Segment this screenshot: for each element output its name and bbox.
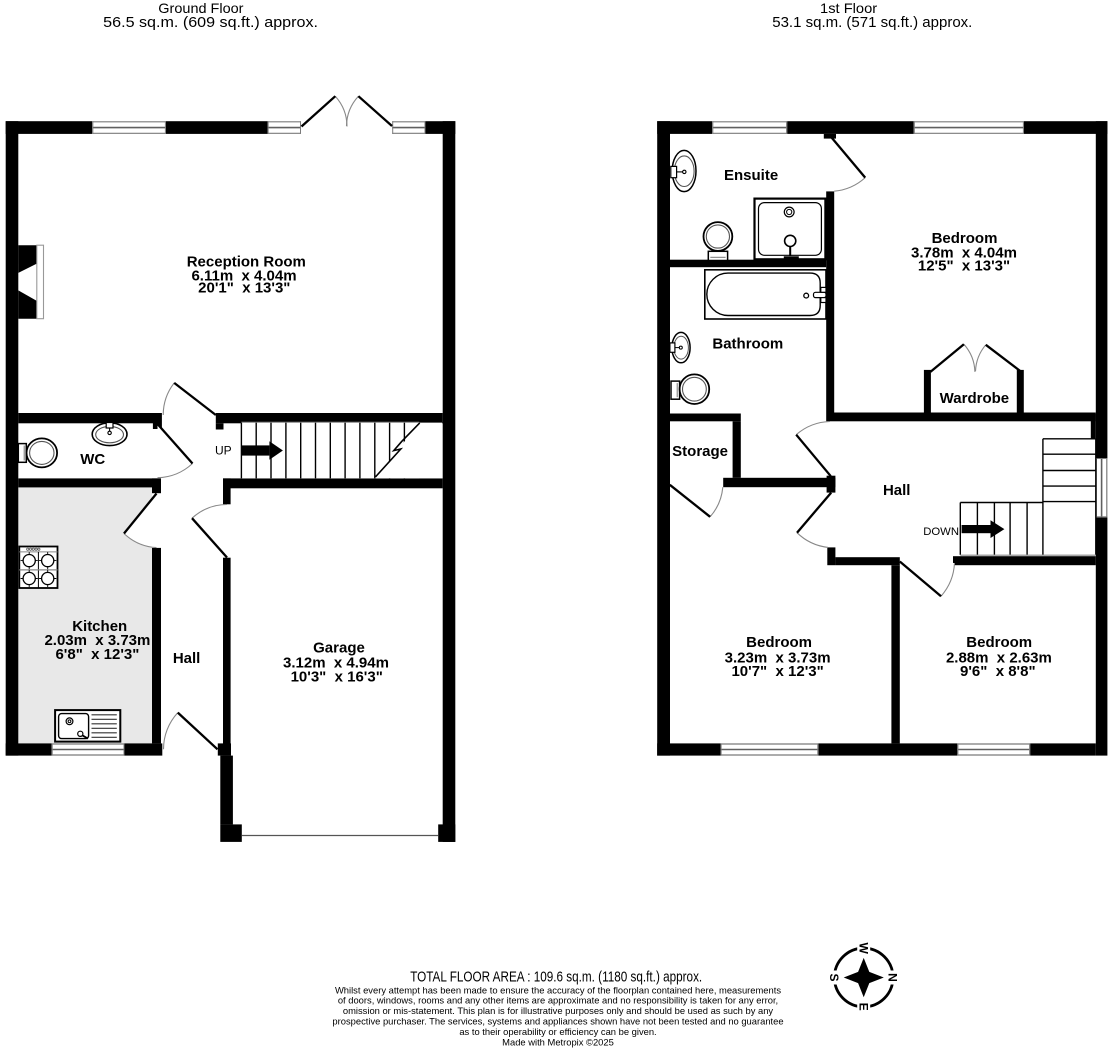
svg-text:WC: WC — [80, 451, 105, 468]
svg-text:omission or mis-statement. Thi: omission or mis-statement. This plan is … — [343, 1005, 774, 1016]
svg-text:9'6" x 8'8": 9'6" x 8'8" — [960, 663, 1036, 680]
svg-text:53.1 sq.m. (571 sq.ft.) approx: 53.1 sq.m. (571 sq.ft.) approx. — [772, 14, 972, 31]
svg-text:56.5 sq.m. (609 sq.ft.) approx: 56.5 sq.m. (609 sq.ft.) approx. — [103, 14, 318, 31]
svg-text:Hall: Hall — [173, 650, 201, 667]
svg-text:UP: UP — [215, 444, 232, 458]
svg-text:Hall: Hall — [883, 482, 911, 499]
svg-text:6'8" x 12'3": 6'8" x 12'3" — [55, 646, 139, 663]
svg-text:Wardrobe: Wardrobe — [940, 390, 1009, 407]
svg-text:Made with Metropix ©2025: Made with Metropix ©2025 — [502, 1036, 614, 1047]
svg-text:of doors, windows, rooms and a: of doors, windows, rooms and any other i… — [338, 995, 778, 1006]
svg-text:as to their operability or eff: as to their operability or efficiency ca… — [459, 1026, 656, 1037]
svg-text:E: E — [856, 1003, 870, 1011]
svg-text:TOTAL FLOOR AREA : 109.6 sq.m.: TOTAL FLOOR AREA : 109.6 sq.m. (1180 sq.… — [410, 969, 702, 986]
svg-text:S: S — [827, 973, 841, 981]
svg-text:12'5" x 13'3": 12'5" x 13'3" — [918, 258, 1010, 275]
svg-text:prospective purchaser. The ser: prospective purchaser. The services, sys… — [332, 1016, 783, 1027]
svg-text:Ensuite: Ensuite — [724, 167, 778, 184]
svg-text:10'3" x 16'3": 10'3" x 16'3" — [291, 669, 383, 686]
svg-text:Whilst every attempt has been: Whilst every attempt has been made to en… — [335, 984, 781, 995]
svg-text:20'1" x 13'3": 20'1" x 13'3" — [198, 280, 290, 297]
svg-text:10'7" x 12'3": 10'7" x 12'3" — [731, 663, 823, 680]
svg-text:Bathroom: Bathroom — [712, 336, 783, 353]
svg-text:W: W — [856, 943, 870, 955]
svg-text:Storage: Storage — [672, 443, 728, 460]
svg-text:DOWN: DOWN — [923, 526, 959, 538]
svg-text:N: N — [886, 973, 900, 982]
